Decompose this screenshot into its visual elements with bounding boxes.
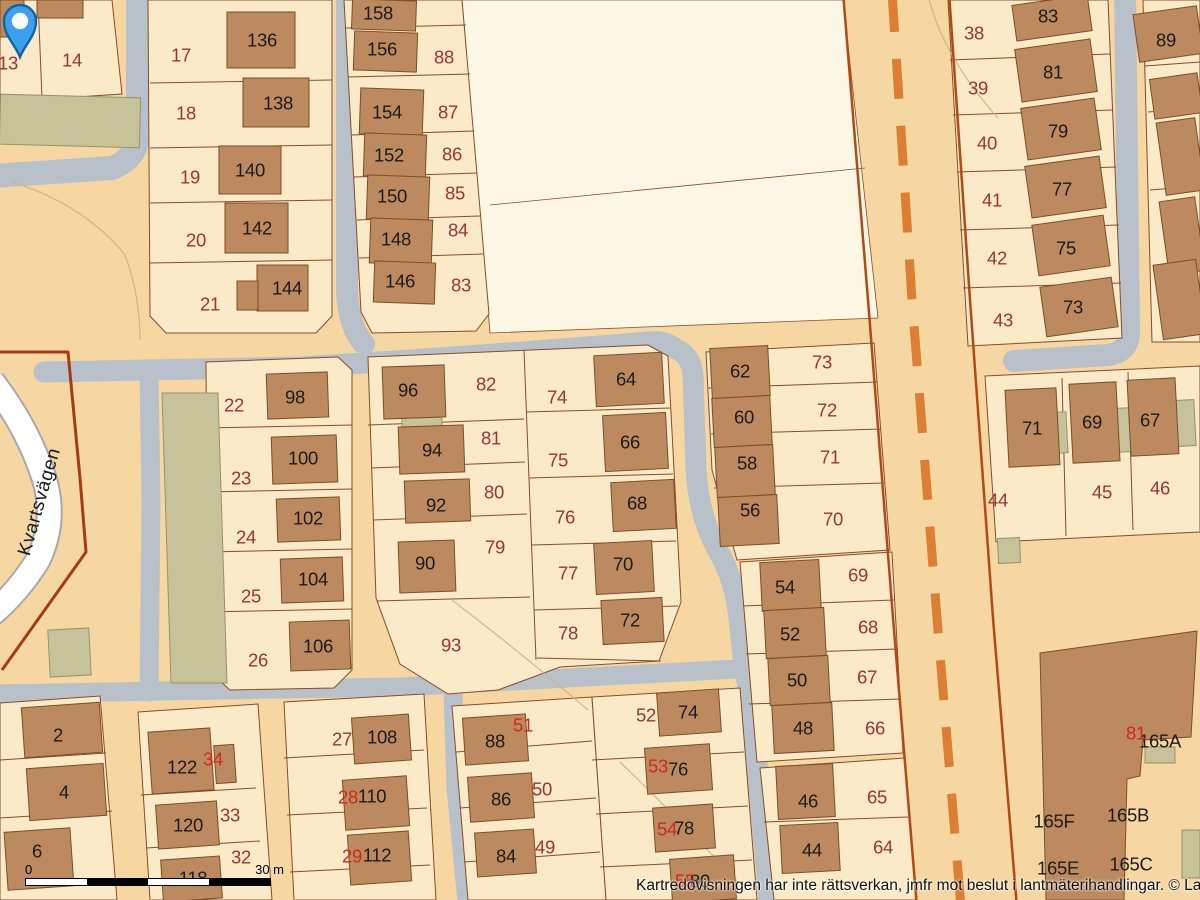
building-number: 165C <box>1109 854 1152 875</box>
building-number: 60 <box>734 407 754 428</box>
building-number: 54 <box>775 577 795 598</box>
building-number: 71 <box>1022 418 1042 439</box>
building-number: 83 <box>1038 6 1058 27</box>
building-number: 154 <box>372 102 402 123</box>
building-number: 76 <box>668 759 688 780</box>
building-number: 44 <box>802 840 822 861</box>
road <box>0 669 737 694</box>
address-number: 53 <box>648 756 668 777</box>
attribution-text: Kartredovisningen har inte rättsverkan, … <box>636 877 1200 895</box>
building-number: 77 <box>1052 179 1072 200</box>
parcel-number: 26 <box>248 650 268 671</box>
building-number: 148 <box>381 229 411 250</box>
building-number: 92 <box>426 495 446 516</box>
map-canvas[interactable]: 1314171819202122232425262732333839404142… <box>0 0 1200 900</box>
address-number: 34 <box>203 749 223 770</box>
building-number: 104 <box>298 569 328 590</box>
parcel-number: 75 <box>548 450 568 471</box>
parcel-number: 42 <box>987 248 1007 269</box>
parcel-number: 39 <box>968 78 988 99</box>
scale-end-label: 30 m <box>255 862 284 878</box>
parcel-number: 80 <box>484 482 504 503</box>
parcel-number: 46 <box>1150 478 1170 499</box>
building-number: 100 <box>288 448 318 469</box>
parcel-number: 17 <box>171 45 191 66</box>
building-number: 78 <box>674 818 694 839</box>
building-number: 110 <box>358 786 387 807</box>
outbuilding <box>0 94 141 148</box>
parcel-number: 67 <box>857 667 877 688</box>
building-number: 6 <box>32 841 42 862</box>
building-number: 122 <box>167 757 197 778</box>
parcel-number: 70 <box>823 509 843 530</box>
parcel-number: 21 <box>200 294 220 315</box>
building-number: 106 <box>303 636 333 657</box>
building-number: 108 <box>367 727 397 748</box>
outbuilding <box>48 628 91 677</box>
parcel-number: 82 <box>476 374 496 395</box>
parcel-number: 18 <box>176 103 196 124</box>
parcel-number: 49 <box>535 837 555 858</box>
building-number: 152 <box>374 145 404 166</box>
parcel-number: 40 <box>977 133 997 154</box>
scale-zero-label: 0 <box>25 862 32 878</box>
building-number: 67 <box>1140 410 1160 431</box>
parcel-number: 24 <box>236 527 256 548</box>
building-number: 81 <box>1043 62 1063 83</box>
building-number: 112 <box>363 845 392 866</box>
parcel-number: 43 <box>993 310 1013 331</box>
location-pin[interactable] <box>0 0 40 60</box>
building-number: 75 <box>1056 238 1076 259</box>
address-number: 51 <box>513 715 533 736</box>
parcel-number: 38 <box>964 23 984 44</box>
parcel-number: 44 <box>988 490 1008 511</box>
open-field <box>462 0 878 333</box>
building-number: 88 <box>485 731 505 752</box>
building <box>1149 73 1200 119</box>
building-number: 146 <box>385 271 415 292</box>
building-number: 102 <box>293 508 323 529</box>
parcel-number: 69 <box>848 565 868 586</box>
parcel-number: 72 <box>817 400 837 421</box>
building-number: 98 <box>285 387 305 408</box>
parcel-number: 81 <box>481 428 501 449</box>
building-number: 2 <box>53 725 63 746</box>
building-number: 72 <box>620 610 640 631</box>
building-number: 66 <box>620 432 640 453</box>
map-graphics: 1314171819202122232425262732333839404142… <box>0 0 1200 900</box>
building-number: 165F <box>1034 811 1075 832</box>
building-number: 89 <box>1156 30 1176 51</box>
outbuilding <box>997 537 1020 563</box>
address-number: 28 <box>338 787 358 808</box>
parcel-number: 83 <box>451 275 471 296</box>
parcel-number: 93 <box>441 635 461 656</box>
parcel-number: 71 <box>820 447 840 468</box>
parcel-number: 86 <box>442 144 462 165</box>
address-number: 81 <box>1126 723 1146 744</box>
building-number: 158 <box>363 3 393 24</box>
parcel-number: 85 <box>445 183 465 204</box>
scale-strip <box>25 878 271 886</box>
building-number: 58 <box>737 453 757 474</box>
parcel-number: 27 <box>332 729 352 750</box>
building-number: 138 <box>263 93 293 114</box>
building-number: 52 <box>780 624 800 645</box>
building-number: 79 <box>1048 121 1068 142</box>
parcel-number: 68 <box>858 617 878 638</box>
building-number: 73 <box>1063 297 1083 318</box>
outbuilding <box>1182 830 1200 878</box>
outbuilding <box>1176 400 1196 447</box>
building <box>237 281 258 310</box>
building-number: 62 <box>730 361 750 382</box>
address-number: 54 <box>657 819 677 840</box>
building-number: 50 <box>787 670 807 691</box>
building-number: 68 <box>627 493 647 514</box>
building-number: 142 <box>242 218 272 239</box>
parcel-number: 84 <box>448 220 468 241</box>
building-number: 94 <box>422 440 442 461</box>
building-number: 48 <box>793 718 813 739</box>
parcel-number: 76 <box>555 507 575 528</box>
footpath <box>12 182 140 340</box>
building-number: 136 <box>247 30 277 51</box>
location-pin-hole <box>12 13 28 29</box>
building-number: 84 <box>496 846 516 867</box>
building-number: 165B <box>1107 805 1149 826</box>
building-number: 46 <box>798 791 818 812</box>
parcel-number: 50 <box>532 779 552 800</box>
building-number: 150 <box>377 186 407 207</box>
building-number: 70 <box>613 554 633 575</box>
building-number: 4 <box>59 782 69 803</box>
parcel-number: 78 <box>558 623 578 644</box>
parcel-number: 64 <box>873 837 893 858</box>
parcel-number: 87 <box>438 102 458 123</box>
building-number: 74 <box>678 702 698 723</box>
building-number: 69 <box>1082 412 1102 433</box>
building-number: 64 <box>616 369 636 390</box>
road <box>149 371 151 692</box>
parcel-number: 52 <box>636 705 656 726</box>
building-number: 90 <box>415 553 435 574</box>
parcel-number: 74 <box>547 387 567 408</box>
parcel-number: 45 <box>1092 482 1112 503</box>
building <box>37 0 83 18</box>
building-number: 165E <box>1037 858 1079 879</box>
parcel-number: 14 <box>62 50 82 71</box>
building-number: 144 <box>272 278 302 299</box>
open-field-layer <box>462 0 878 333</box>
building-number: 56 <box>740 500 760 521</box>
parcel-number: 73 <box>812 352 832 373</box>
parcel-number: 20 <box>186 230 206 251</box>
parcel-number: 33 <box>220 805 240 826</box>
building-number: 120 <box>173 815 203 836</box>
parcel-number: 41 <box>982 190 1002 211</box>
building-number: 86 <box>491 789 511 810</box>
parcel-number: 77 <box>558 563 578 584</box>
building-number: 140 <box>235 160 265 181</box>
outbuilding <box>162 393 227 683</box>
building-number: 156 <box>367 39 397 60</box>
parcel-number: 23 <box>231 468 251 489</box>
parcel-number: 19 <box>180 167 200 188</box>
parcel-number: 88 <box>434 47 454 68</box>
parcel-number: 65 <box>867 787 887 808</box>
parcel-number: 25 <box>241 586 261 607</box>
parcel-number: 22 <box>224 395 244 416</box>
building-number: 96 <box>398 380 418 401</box>
parcel-number: 66 <box>865 718 885 739</box>
parcel-number: 79 <box>485 537 505 558</box>
address-number: 29 <box>342 846 362 867</box>
scale-bar: 0 30 m <box>25 862 271 886</box>
